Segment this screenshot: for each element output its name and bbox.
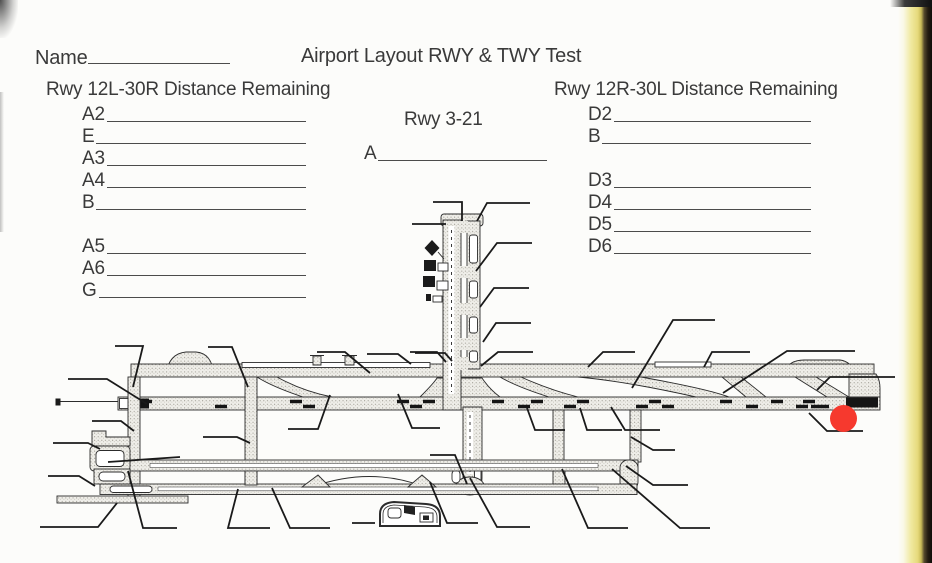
taxiway-exit-ramps — [257, 374, 880, 397]
terminal-area — [380, 502, 440, 526]
scanned-test-page: { "colors": { "paper": "#fcfcfa", "ink":… — [0, 0, 932, 563]
airport-diagram — [0, 0, 932, 563]
red-dot-marker — [830, 405, 857, 432]
left-apron — [90, 431, 130, 484]
runway-12r-30l-graphic — [57, 471, 637, 503]
